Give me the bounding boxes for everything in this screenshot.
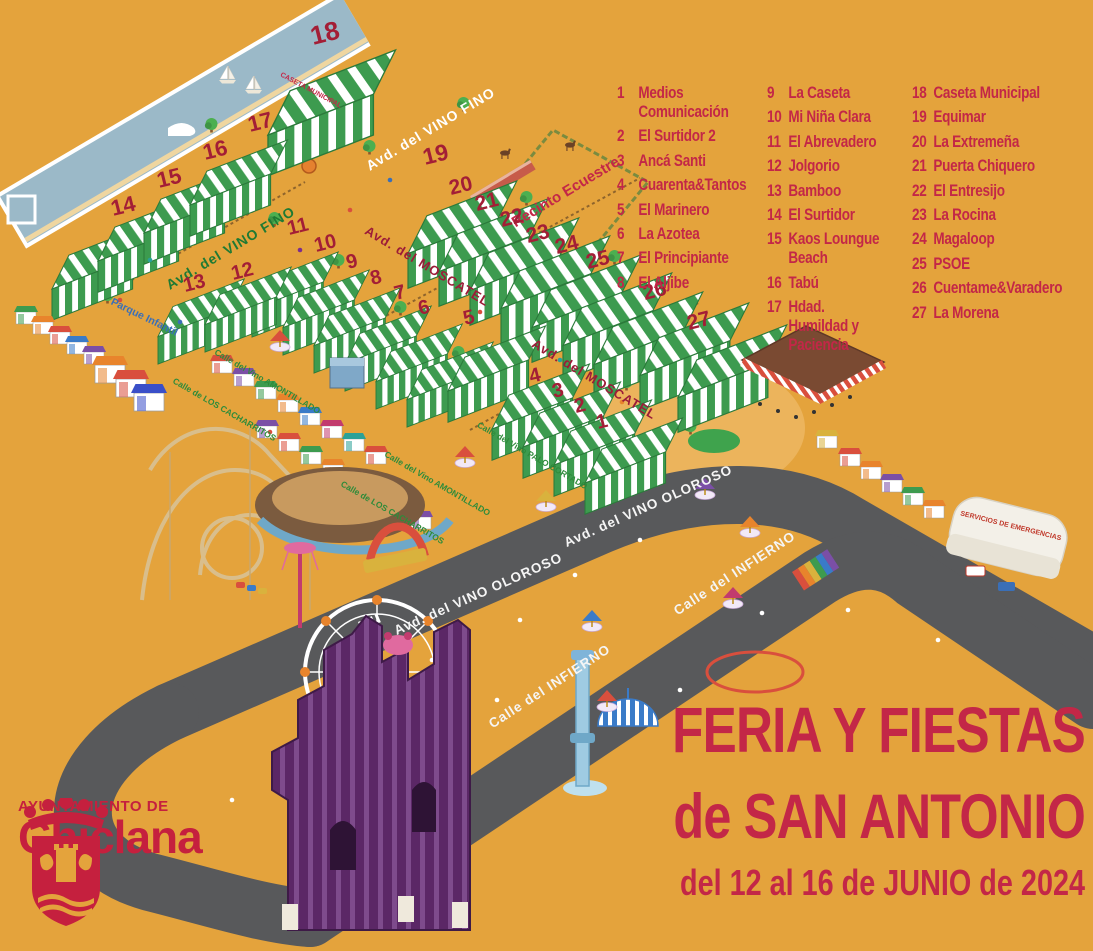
legend-item: 13Bamboo [767, 182, 923, 201]
legend-item: 9La Caseta [767, 84, 923, 103]
title-line-1: FERIA Y FIESTAS [637, 698, 1085, 762]
service-building [330, 358, 364, 388]
legend-item: 14El Surtidor [767, 206, 923, 225]
legend-item: 5El Marinero [617, 201, 769, 220]
grass-oval [688, 429, 740, 453]
legend-item: 1Medios Comunicación [617, 84, 769, 122]
legend-item: 27La Morena [912, 304, 1093, 323]
legend-item: 24Magaloop [912, 230, 1093, 249]
chiclana-crest-icon [18, 798, 114, 930]
legend-column-1: 1Medios Comunicación 2El Surtidor 2 3Anc… [617, 84, 769, 298]
title-line-2: de SAN ANTONIO [637, 786, 1085, 849]
legend-item: 6La Azotea [617, 225, 769, 244]
legend-item: 18Caseta Municipal [912, 84, 1093, 103]
legend-item: 10Mi Niña Clara [767, 108, 923, 127]
legend-item: 16Tabú [767, 274, 923, 293]
legend-item: 20La Extremeña [912, 133, 1093, 152]
ayuntamiento-logo: AYUNTAMIENTO DE Chiclana [18, 798, 202, 859]
legend-item: 25PSOE [912, 255, 1093, 274]
legend-item: 12Jolgorio [767, 157, 923, 176]
legend-item: 17Hdad. Humildad y Paciencia [767, 298, 923, 355]
legend-item: 7El Principiante [617, 249, 769, 268]
legend-column-2: 9La Caseta 10Mi Niña Clara 11El Abrevade… [767, 84, 923, 361]
legend-item: 8El Aljibe [617, 274, 769, 293]
feria-map-poster: SERVICIOS DE EMERGENCIAS Avd. del VINO F… [0, 0, 1093, 951]
legend-item: 4Cuarenta&Tantos [617, 176, 769, 195]
poster-title: FERIA Y FIESTAS de SAN ANTONIO del 12 al… [637, 698, 1085, 901]
legend-item: 11El Abrevadero [767, 133, 923, 152]
title-line-3: del 12 al 16 de JUNIO de 2024 [637, 865, 1085, 901]
legend-item: 22El Entresijo [912, 182, 1093, 201]
legend-item: 2El Surtidor 2 [617, 127, 769, 146]
legend-item: 15Kaos Loungue Beach [767, 230, 923, 268]
legend-column-3: 18Caseta Municipal 19Equimar 20La Extrem… [912, 84, 1093, 328]
legend-item: 19Equimar [912, 108, 1093, 127]
legend-item: 26Cuentame&Varadero [912, 279, 1093, 298]
legend-item: 23La Rocina [912, 206, 1093, 225]
legend-item: 3Ancá Santi [617, 152, 769, 171]
pier-end [8, 196, 35, 223]
legend-item: 21Puerta Chiquero [912, 157, 1093, 176]
